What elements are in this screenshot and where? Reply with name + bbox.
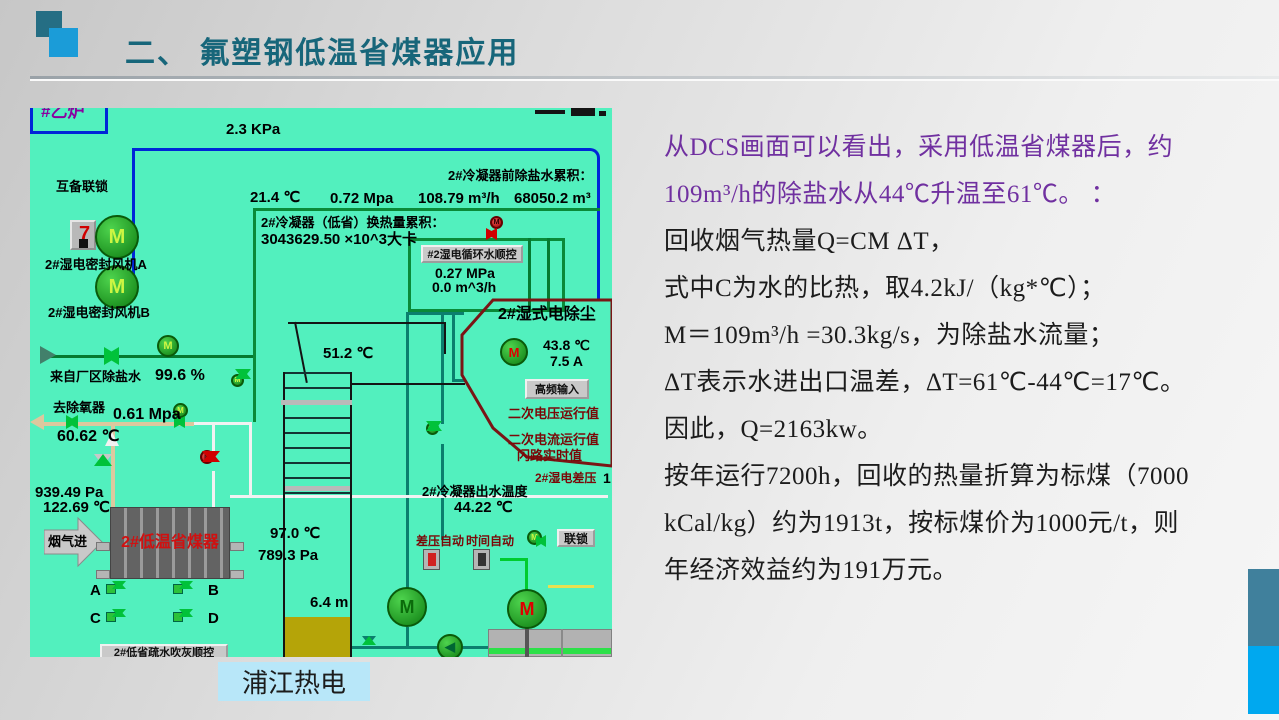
desal-water-line — [45, 355, 253, 358]
sec-voltage-label: 二次电压运行值 — [508, 407, 599, 421]
cropped-text-fragment — [599, 111, 606, 116]
pipe — [406, 312, 409, 589]
circwater-seq-button[interactable]: #2湿电循环水顺控 — [421, 245, 523, 263]
dp-auto-label: 差压自动 — [416, 535, 464, 548]
valve-d-label: D — [208, 611, 219, 628]
pump-arrow: ◀ — [445, 639, 455, 655]
dcs-screenshot: #乙炉 2#低温省煤器 7 M M M M M M M M M M M M M … — [30, 108, 612, 657]
circ-pump-a-motor-icon[interactable]: M — [387, 587, 427, 627]
pipe — [230, 495, 608, 498]
interlock-button[interactable]: 联锁 — [557, 529, 595, 547]
duct-line — [352, 383, 465, 385]
dp-auto-indicator-icon[interactable] — [423, 549, 440, 570]
pre-desal-label: 2#冷凝器前除盐水累积： — [448, 169, 592, 183]
heat-label: 2#冷凝器（低省）换热量累积： — [261, 216, 444, 230]
fan-a-label: 2#湿电密封风机A — [45, 258, 147, 272]
esp-motor-icon[interactable]: M — [500, 338, 528, 366]
cropped-text-fragment — [535, 110, 565, 114]
outlet-temp-value: 44.22 ℃ — [454, 500, 513, 517]
mutual-interlock-label: 互备联锁 — [56, 180, 108, 194]
cropped-text-fragment — [571, 108, 595, 116]
pump-icon[interactable]: ◀ — [437, 634, 463, 657]
heat-value: 3043629.50 ×10^3大卡 — [261, 232, 417, 249]
tube-bank-band — [281, 400, 352, 405]
time-auto-indicator-icon[interactable] — [473, 549, 490, 570]
motor-letter: M — [109, 226, 126, 249]
body-line: 回收烟气热量Q=CM ΔT， — [664, 218, 1272, 265]
flash-value-label: 闪路实时值 — [517, 449, 582, 463]
temp-970: 97.0 ℃ — [270, 526, 320, 543]
interlock-switch-base — [79, 239, 88, 248]
flow-00: 0.0 m^3/h — [432, 280, 496, 295]
body-line: 式中C为水的比热，取4.2kJ/（kg*℃）； — [664, 265, 1272, 312]
damper-valve-a-icon[interactable] — [106, 581, 136, 599]
motor-letter: M — [109, 276, 126, 299]
inlet-arrow-icon — [40, 346, 56, 364]
damper-valve-c-icon[interactable] — [106, 609, 136, 627]
valve-a-label: A — [90, 583, 101, 600]
from-plant-label: 来自厂区除盐水 — [50, 370, 141, 384]
pipe — [500, 558, 528, 561]
water-seal-level — [285, 617, 350, 657]
caption-box: 浦江热电 — [218, 662, 370, 701]
slide-title: 二、 氟塑钢低温省煤器应用 — [125, 28, 519, 72]
flow-10879: 108.79 m³/h — [418, 191, 500, 208]
valve-position: 99.6 % — [155, 367, 205, 385]
body-line: kCal/kg）约为1913t，按标煤价为1000元/t，则 — [664, 500, 1272, 547]
boiler-tag: #乙炉 — [41, 108, 84, 122]
agitator-stem — [525, 627, 529, 657]
motor-letter: M — [400, 597, 415, 618]
motor-letter: M — [494, 219, 500, 226]
tube-bank — [285, 372, 350, 494]
esp-title: 2#湿式电除尘 — [498, 306, 596, 324]
top-pressure: 2.3 KPa — [226, 122, 280, 139]
body-text: 从DCS画面可以看出，采用低温省煤器后，约 109m³/h的除盐水从44℃升温至… — [664, 124, 1272, 594]
deaerator-arrow-icon — [30, 414, 44, 430]
yellow-dash — [548, 585, 594, 588]
stack-wall-right — [350, 372, 352, 657]
body-line: 按年运行7200h，回收的热量折算为标煤（7000 — [664, 453, 1272, 500]
economizer-stub — [230, 570, 244, 579]
body-line: 从DCS画面可以看出，采用低温省煤器后，约 — [664, 124, 1272, 171]
temp-214: 21.4 ℃ — [250, 190, 300, 207]
header-divider — [30, 76, 1279, 79]
circ-pump-b-motor-icon[interactable]: M — [507, 589, 547, 629]
press-072: 0.72 Mpa — [330, 191, 393, 208]
body-line: ΔT表示水进出口温差，ΔT=61℃-44℃=17℃。 — [664, 359, 1272, 406]
economizer-label: 2#低温省煤器 — [121, 534, 219, 552]
esp-dp-cut-value: 1 — [603, 471, 611, 486]
current-75: 7.5 A — [550, 354, 583, 369]
valve-b-label: B — [208, 583, 219, 600]
control-valve-motor-icon[interactable]: M — [157, 335, 179, 357]
temp-512: 51.2 ℃ — [323, 346, 373, 363]
pipe — [212, 422, 215, 454]
press-061: 0.61 Mpa — [113, 406, 181, 424]
temp-12269: 122.69 ℃ — [43, 500, 110, 517]
deco-square-blue — [49, 28, 78, 57]
economizer-stub — [96, 570, 110, 579]
economizer-stub — [96, 542, 110, 551]
body-line: 109m³/h的除盐水从44℃升温至61℃。 ： — [664, 171, 1272, 218]
temp-6062: 60.62 ℃ — [57, 428, 119, 446]
damper-valve-b-icon[interactable] — [173, 581, 203, 599]
basin-divider — [561, 629, 563, 657]
basin-green-stripe — [489, 648, 611, 654]
body-line: 因此，Q=2163kw。 — [664, 406, 1272, 453]
time-auto-label: 时间自动 — [466, 535, 514, 548]
fan-a-motor-icon[interactable]: M — [95, 215, 139, 259]
damper-valve-d-icon[interactable] — [173, 609, 203, 627]
pre-desal-value: 68050.2 m³ — [514, 191, 591, 208]
motor-letter: M — [509, 345, 520, 360]
motor-letter: M — [163, 340, 172, 352]
pipe — [525, 558, 528, 590]
pipe — [249, 422, 252, 497]
body-line: M＝109m³/h =30.3kg/s，为除盐水流量； — [664, 312, 1272, 359]
blowdown-seq-button[interactable]: 2#低省疏水吹灰顺控 — [100, 644, 228, 657]
pipe — [212, 471, 215, 509]
outlet-temp-label: 2#冷凝器出水温度 — [422, 485, 527, 499]
body-line: 年经济效益约为191万元。 — [664, 547, 1272, 594]
deaerator-label: 去除氧器 — [53, 401, 105, 415]
caption-text: 浦江热电 — [242, 663, 346, 700]
duct-line — [288, 322, 446, 324]
economizer-stub — [230, 542, 244, 551]
fan-b-label: 2#湿电密封风机B — [48, 306, 150, 320]
level-value: 6.4 m — [310, 595, 348, 612]
feedwater-line — [193, 422, 251, 425]
flue-in-label: 烟气进 — [48, 535, 87, 549]
boiler-tag-box: #乙炉 — [30, 108, 108, 134]
hf-input-button[interactable]: 高频输入 — [525, 379, 589, 399]
edge-bar-teal — [1248, 569, 1279, 646]
edge-bar-blue — [1248, 646, 1279, 714]
duct-line — [444, 322, 446, 354]
economizer-block: 2#低温省煤器 — [110, 507, 230, 579]
valve-c-label: C — [90, 611, 101, 628]
tube-bank-band — [285, 486, 350, 491]
motor-letter: M — [520, 599, 535, 620]
pipe — [348, 646, 488, 649]
sec-current-label: 二次电流运行值 — [508, 433, 599, 447]
interlock-switch-icon[interactable]: 7 — [70, 220, 96, 250]
esp-dp-label: 2#湿电差压 — [535, 472, 596, 485]
temp-438: 43.8 ℃ — [543, 338, 590, 353]
press-7893: 789.3 Pa — [258, 548, 318, 565]
